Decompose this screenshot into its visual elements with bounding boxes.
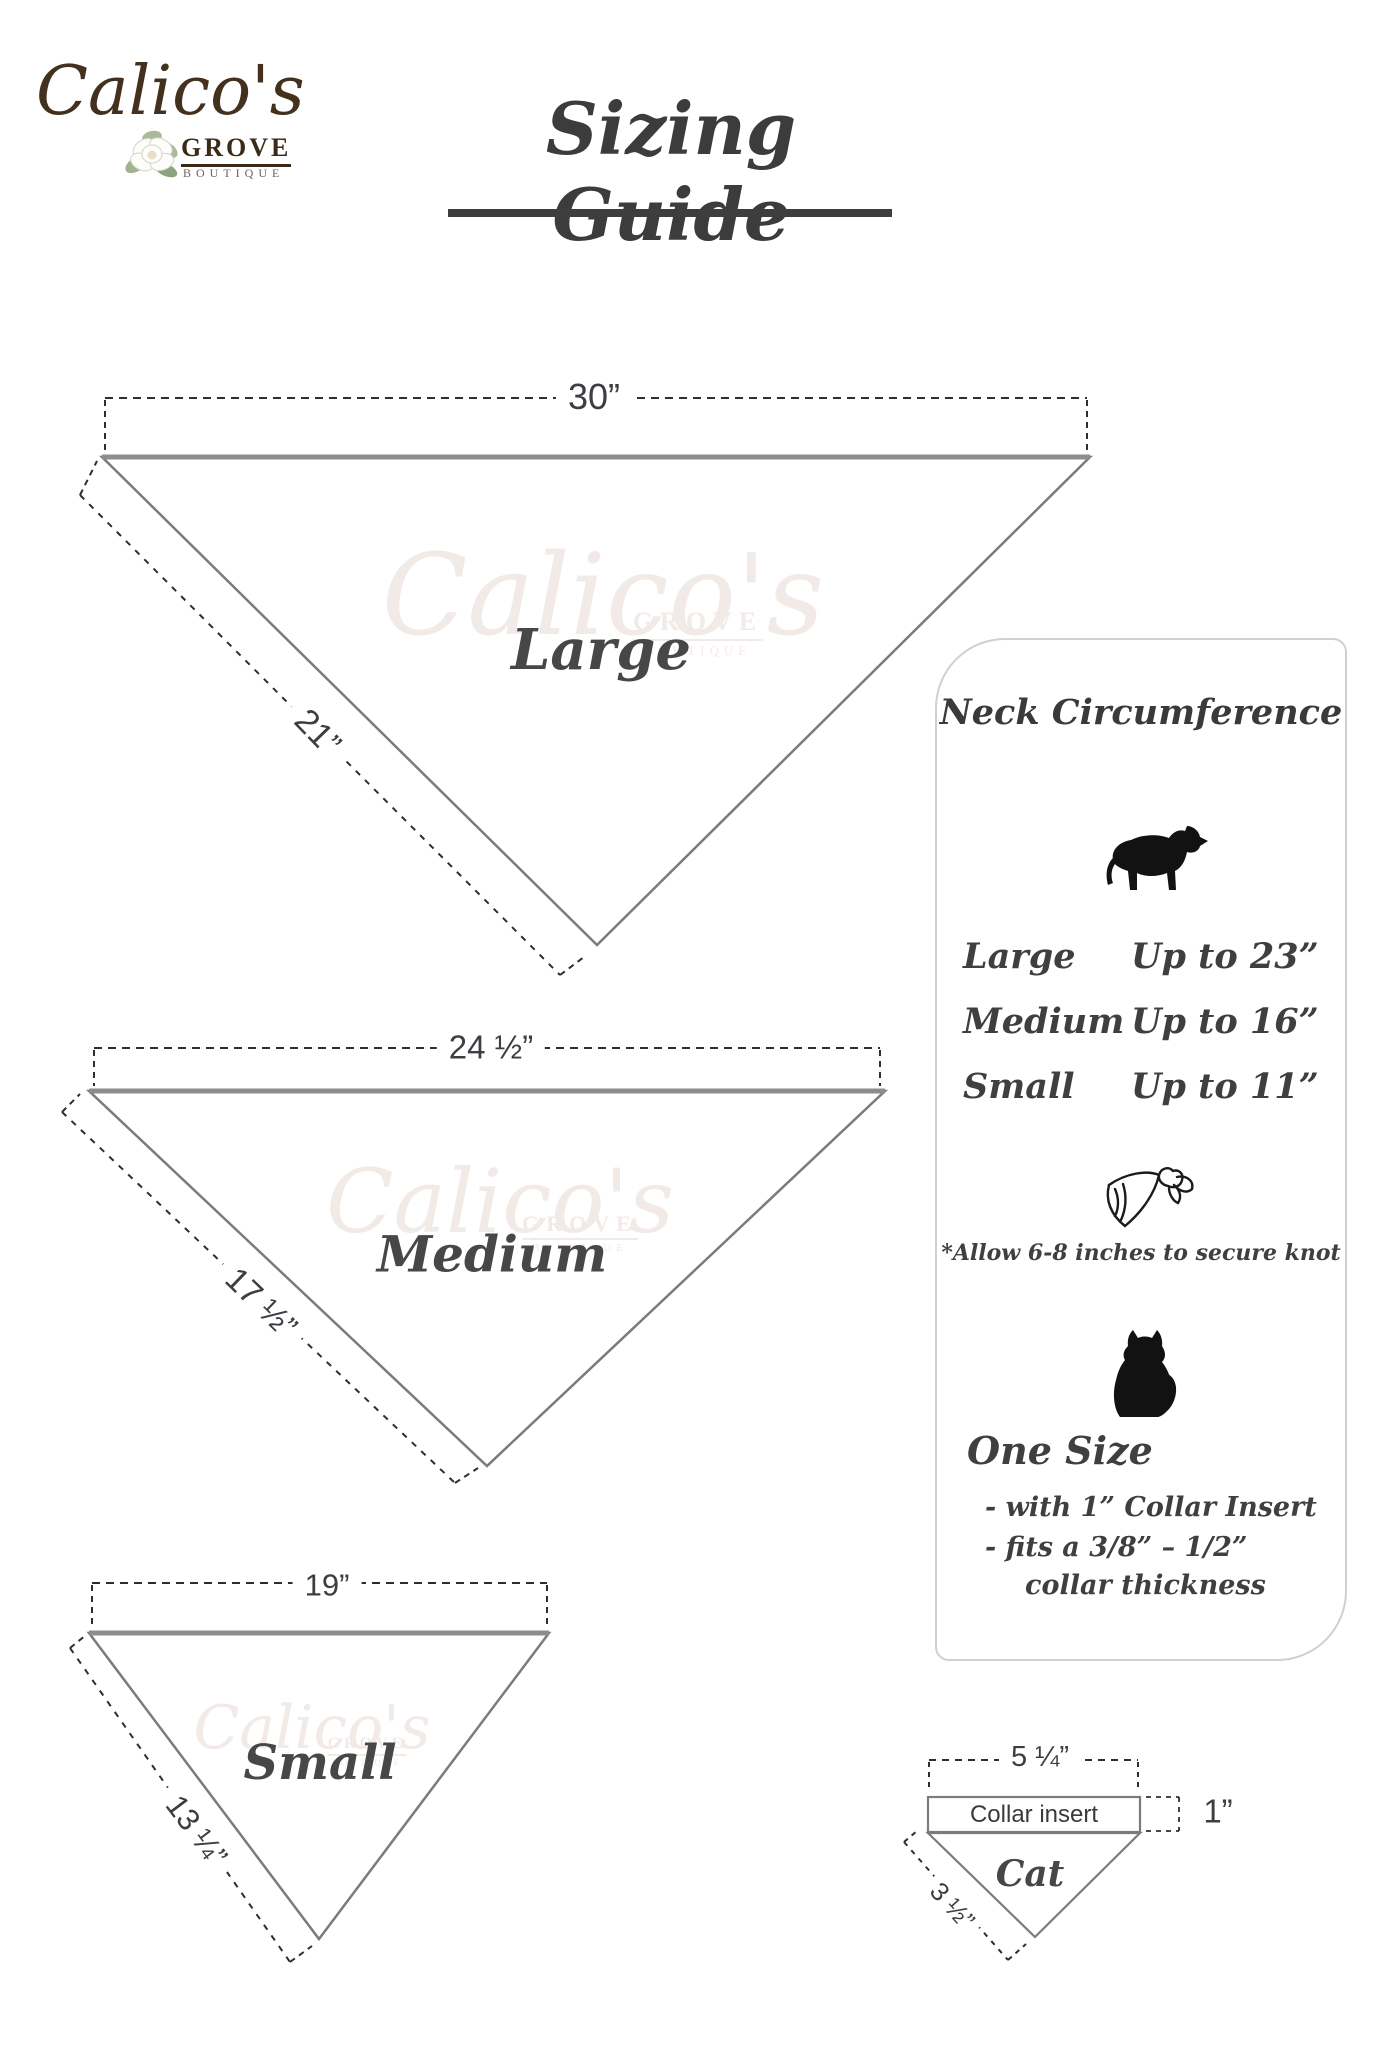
bandana-icon — [1097, 1164, 1197, 1244]
one-size-bullet-1: - with 1” Collar Insert — [985, 1492, 1317, 1523]
one-size-heading: One Size — [967, 1428, 1153, 1473]
medium-top-dimension: 24 ½” — [437, 1031, 545, 1066]
insert-height-dim-bracket — [1146, 1797, 1179, 1831]
size-name: Small — [963, 1066, 1131, 1108]
brand-logo-grove: GROVE — [181, 133, 291, 167]
knot-allowance-note: *Allow 6-8 inches to secure knot — [937, 1240, 1345, 1266]
page-title-underline — [448, 209, 892, 217]
small-top-dimension: 19” — [293, 1570, 362, 1603]
one-size-bullet-3: collar thickness — [1025, 1570, 1266, 1601]
medium-size-label: Medium — [377, 1225, 607, 1284]
collar-insert-label: Collar insert — [928, 1797, 1140, 1832]
one-size-bullet-2: - fits a 3/8” – 1/2” — [985, 1532, 1247, 1563]
magnolia-flower-icon — [122, 124, 184, 186]
large-top-dimension: 30” — [556, 378, 632, 416]
cat-top-dimension: 5 ¼” — [999, 1742, 1081, 1772]
cat-size-label: Cat — [996, 1853, 1065, 1895]
size-value: Up to 23” — [1131, 936, 1319, 978]
size-value: Up to 16” — [1131, 1001, 1319, 1043]
neck-circumference-panel: Neck Circumference Large Up to 23” Mediu… — [935, 638, 1347, 1661]
size-name: Large — [963, 936, 1131, 978]
page-title: Sizing Guide — [448, 86, 894, 259]
dog-icon — [1097, 824, 1209, 912]
sizing-guide-page: { "logo": { "name": "Calico's", "grove":… — [0, 0, 1376, 2060]
size-row-large: Large Up to 23” — [963, 936, 1323, 978]
size-row-medium: Medium Up to 16” — [963, 1001, 1323, 1043]
size-table: Large Up to 23” Medium Up to 16” Small U… — [963, 936, 1323, 1131]
size-row-small: Small Up to 11” — [963, 1066, 1323, 1108]
cat-icon — [1104, 1330, 1182, 1418]
size-name: Medium — [963, 1001, 1131, 1043]
small-size-label: Small — [243, 1735, 396, 1791]
large-size-label: Large — [511, 617, 691, 683]
panel-heading: Neck Circumference — [937, 692, 1345, 733]
size-value: Up to 11” — [1131, 1066, 1319, 1108]
insert-height-dimension: 1” — [1199, 1795, 1236, 1830]
brand-logo-boutique: BOUTIQUE — [183, 166, 284, 181]
